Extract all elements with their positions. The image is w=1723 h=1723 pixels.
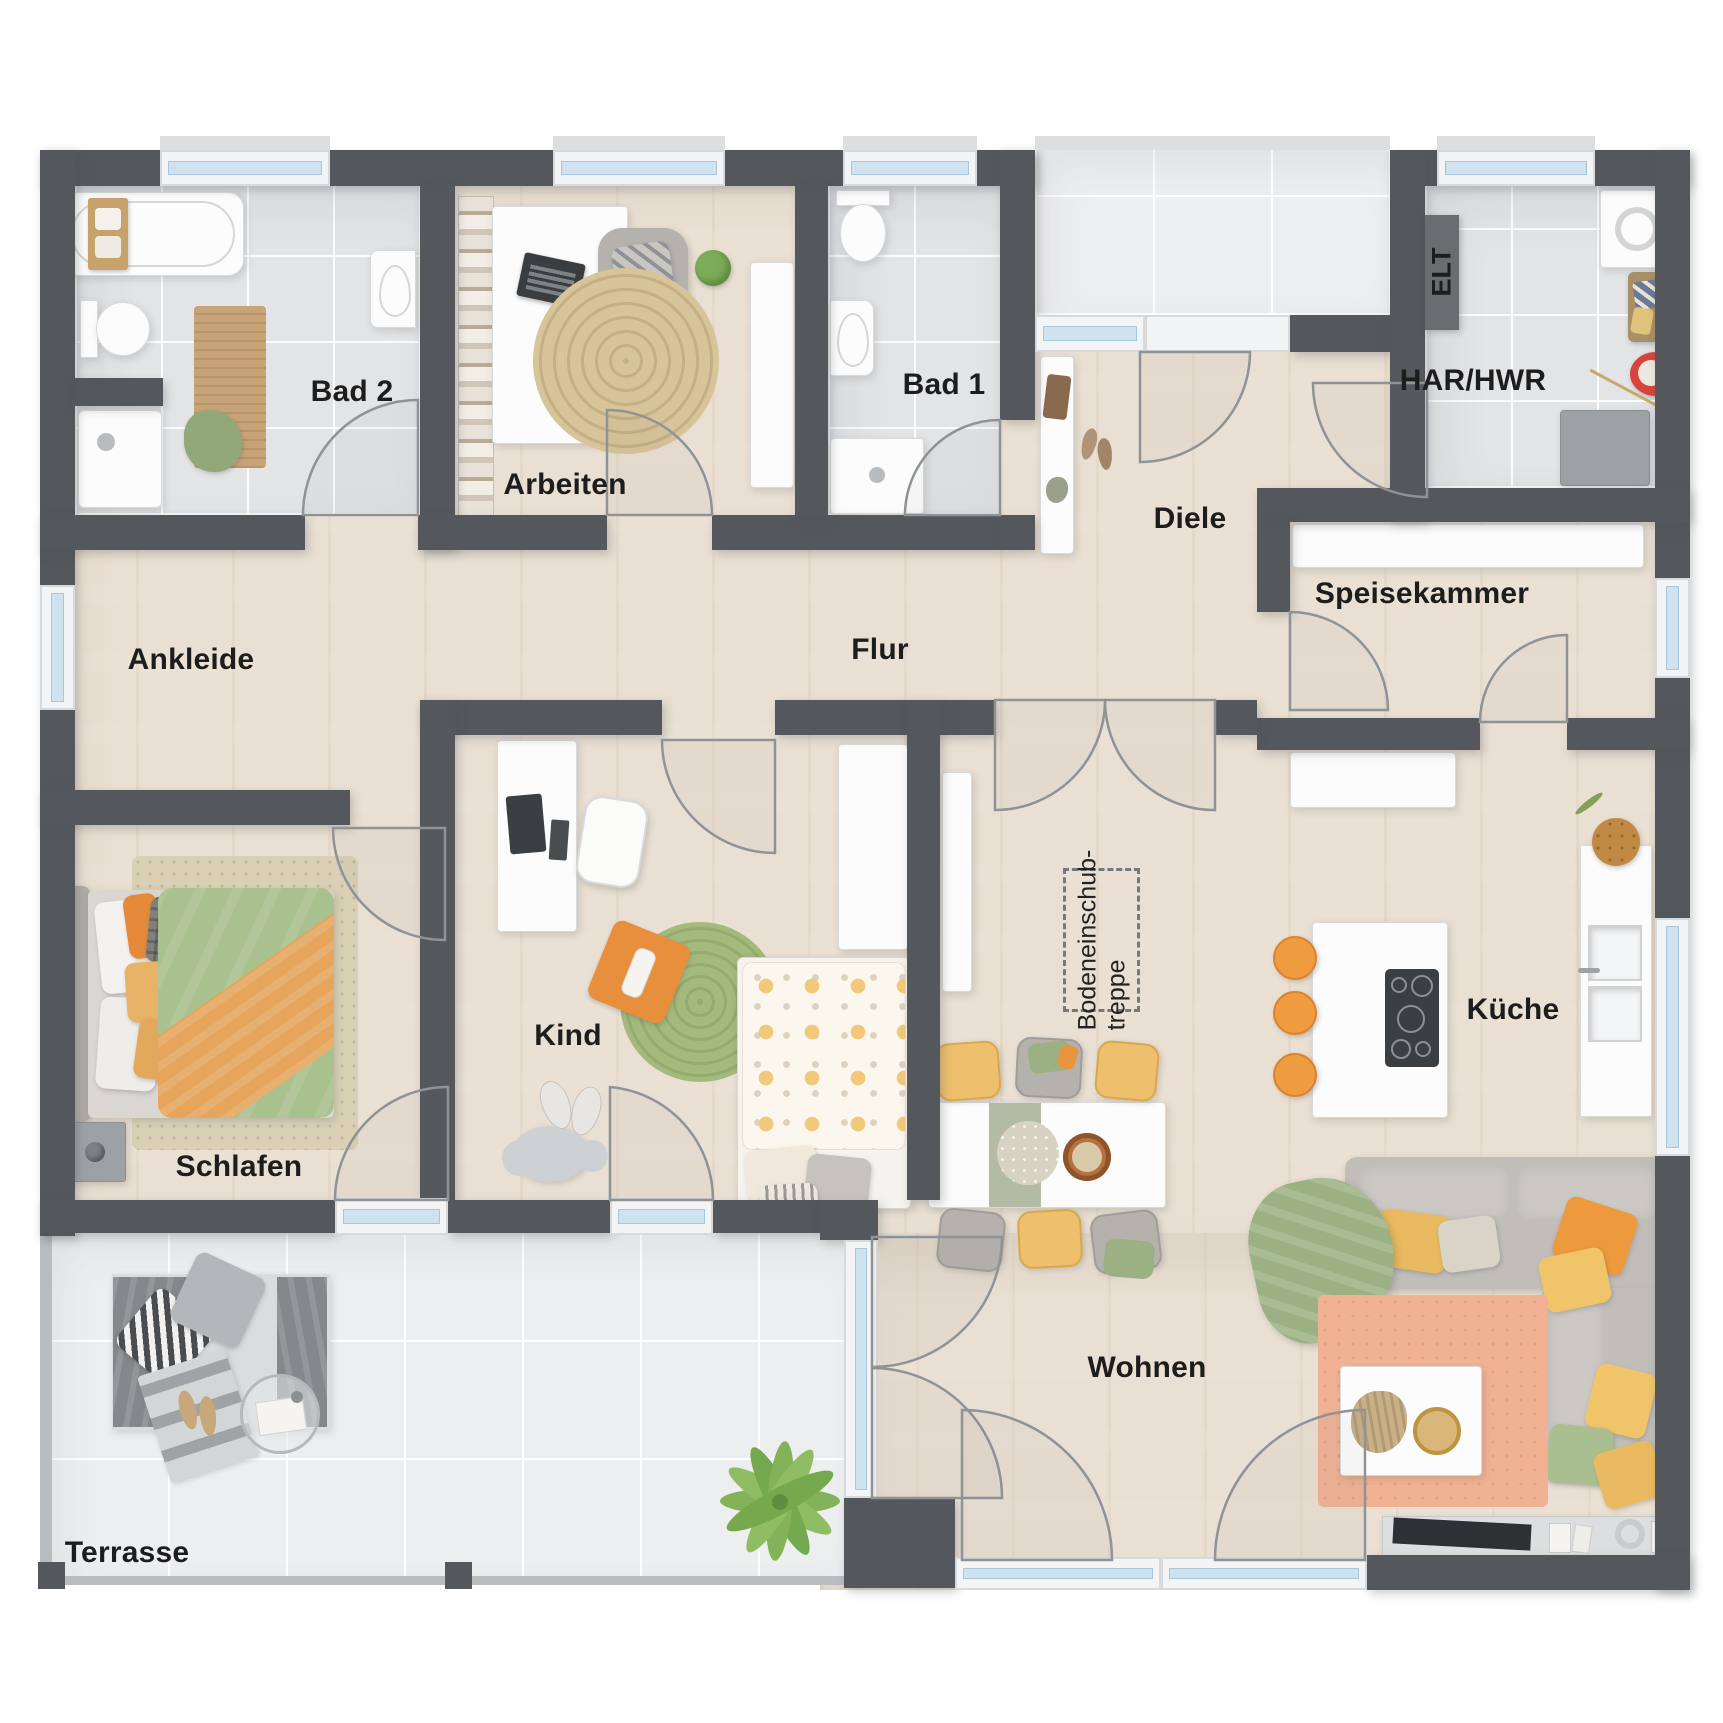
- entry-sidelight: [1035, 315, 1145, 352]
- room-label-diele: Diele: [1154, 502, 1227, 536]
- kitchen-island: [1312, 922, 1448, 1118]
- window: [1655, 918, 1690, 1156]
- wall-har-west: [1390, 150, 1425, 520]
- tv-lowboard: [1382, 1516, 1680, 1560]
- wall-interior: [1000, 515, 1035, 550]
- terrace-edge-left: [40, 1233, 52, 1585]
- room-label-arbeiten: Arbeiten: [503, 468, 626, 502]
- terrace-post: [445, 1562, 472, 1589]
- attic-hatch-label: Bodeneinschub- treppe: [1073, 850, 1131, 1031]
- plush-toy: [619, 946, 658, 1001]
- wall-living-corner: [844, 1498, 955, 1588]
- window-sill: [553, 136, 725, 150]
- window: [160, 150, 330, 186]
- room-label-terrasse: Terrasse: [65, 1536, 189, 1570]
- dining-chair: [934, 1040, 1002, 1102]
- wall-exterior-bottom: [448, 1200, 610, 1233]
- room-label-ankleide: Ankleide: [128, 643, 255, 677]
- tall-cabinet: [750, 262, 794, 488]
- tv-screen: [1392, 1517, 1531, 1550]
- room-label-wohnen: Wohnen: [1088, 1351, 1207, 1385]
- window-sill: [1437, 136, 1595, 150]
- kitchen-counter: [1580, 845, 1652, 1117]
- dried-plant: [1351, 1391, 1407, 1453]
- keyboard: [549, 819, 570, 860]
- sideboard: [942, 772, 972, 992]
- entry-door-leaf: [1145, 315, 1290, 352]
- wall-pantry-bottom: [1567, 718, 1688, 750]
- wall-interior: [712, 515, 1000, 550]
- patio-door-south: [1161, 1557, 1367, 1590]
- room-label-flur: Flur: [851, 633, 908, 667]
- window: [1655, 578, 1690, 678]
- sofa-pillow-beige: [1437, 1214, 1502, 1274]
- wall-pantry-bottom: [1257, 718, 1480, 750]
- wall-living-west: [820, 1200, 878, 1240]
- wall-exterior-right: [1655, 150, 1690, 1590]
- lamp: [85, 1142, 105, 1162]
- room-label-elt: ELT: [1427, 248, 1458, 297]
- wall-ankleide-south: [40, 790, 350, 825]
- washbasin: [370, 250, 416, 328]
- deco-ring: [1615, 1519, 1645, 1549]
- window-sill: [160, 136, 330, 150]
- dining-chair: [1089, 1208, 1164, 1276]
- entry-step: [1035, 136, 1390, 150]
- bathtub-caddy: [88, 198, 128, 270]
- hall-console: [1040, 356, 1074, 554]
- bar-stool: [1273, 1053, 1317, 1097]
- cloud-table: [576, 1140, 608, 1172]
- washer-door: [1615, 207, 1659, 251]
- bag: [1042, 374, 1071, 421]
- washbasin: [830, 300, 874, 376]
- toilet-bowl: [96, 302, 150, 356]
- gold-tray: [1413, 1407, 1461, 1455]
- round-rug-jute: [533, 268, 719, 454]
- window: [843, 150, 977, 186]
- room-label-speisekammer: Speisekammer: [1315, 577, 1529, 611]
- wall-interior: [40, 515, 305, 550]
- bar-stool: [1273, 936, 1317, 980]
- flower-centerpiece: [997, 1121, 1059, 1185]
- wall-interior: [418, 515, 607, 550]
- room-label-bad2: Bad 2: [311, 375, 394, 409]
- wall-living-south: [1367, 1555, 1690, 1590]
- wall-pantry-top: [1257, 488, 1690, 522]
- wall-kind-west: [420, 700, 455, 1200]
- terrace-door: [610, 1198, 713, 1235]
- cooktop: [1385, 969, 1439, 1067]
- room-label-har-hwr: HAR/HWR: [1400, 364, 1546, 398]
- kids-duvet-dots: [742, 962, 906, 1150]
- dining-chair: [935, 1207, 1007, 1274]
- shower-drain: [97, 433, 115, 451]
- window: [40, 585, 75, 710]
- patio-door-west: [844, 1240, 878, 1498]
- sink-basin: [1588, 986, 1642, 1042]
- patio-door-south: [955, 1557, 1161, 1590]
- coffee-table: [1340, 1366, 1482, 1476]
- shower-drain: [869, 467, 885, 483]
- attic-hatch-outline: Bodeneinschub- treppe: [1063, 868, 1140, 1012]
- wardrobe: [838, 744, 908, 950]
- room-label-kueche: Küche: [1467, 993, 1560, 1027]
- faucet: [1578, 968, 1600, 973]
- room-label-schlafen: Schlafen: [176, 1150, 303, 1184]
- imac-screen: [506, 794, 547, 855]
- window: [1437, 150, 1595, 186]
- wall-interior: [420, 186, 455, 550]
- palm-plant: [700, 1424, 860, 1580]
- floor-tile-porch: [1035, 150, 1390, 315]
- dining-table: [928, 1102, 1166, 1208]
- cup: [291, 1391, 303, 1403]
- kitchen-cabinet-row: [1290, 752, 1456, 808]
- throw-orange: [158, 913, 334, 1118]
- terrace-post: [38, 1562, 65, 1589]
- dining-chair: [1017, 1208, 1084, 1269]
- floor-plan: Bodeneinschub- treppe Bad 2 Arbeiten Bad…: [0, 0, 1723, 1723]
- dining-chair: [1014, 1036, 1083, 1099]
- wall-stub: [960, 700, 995, 735]
- glass-side-table: [240, 1374, 320, 1454]
- wall-hall-south: [420, 700, 662, 735]
- wall-pantry-west: [1257, 522, 1290, 612]
- duvet-green: [158, 888, 334, 1118]
- dining-chair: [1094, 1039, 1161, 1102]
- cloud-table: [502, 1140, 538, 1176]
- wall-interior: [75, 378, 163, 406]
- toilet-bowl: [840, 204, 886, 262]
- window: [553, 150, 725, 186]
- utility-box: [1560, 410, 1650, 486]
- fruit-bowl: [1592, 818, 1640, 866]
- bar-stool: [1273, 991, 1317, 1035]
- shower-tray: [830, 438, 924, 514]
- wall-kind-east: [907, 700, 940, 1200]
- room-label-bad1: Bad 1: [903, 368, 986, 402]
- deco-plant: [1046, 477, 1068, 503]
- pantry-shelf: [1292, 524, 1644, 568]
- serving-bowl: [1063, 1133, 1111, 1181]
- towel-green: [1103, 1238, 1156, 1280]
- plant: [695, 250, 731, 286]
- wall-exterior-bottom: [713, 1200, 820, 1233]
- books: [1571, 1524, 1593, 1554]
- wall-interior: [1000, 150, 1035, 420]
- wall-stub: [1215, 700, 1257, 735]
- room-label-kind: Kind: [534, 1019, 601, 1053]
- wall-interior: [795, 186, 828, 515]
- wall-exterior-bottom: [40, 1200, 335, 1233]
- terrace-door: [335, 1198, 448, 1235]
- wall-entry-front: [1290, 315, 1390, 352]
- window-sill: [843, 136, 977, 150]
- bookshelf: [458, 196, 494, 516]
- shower-tray: [78, 410, 162, 508]
- books: [1549, 1523, 1571, 1553]
